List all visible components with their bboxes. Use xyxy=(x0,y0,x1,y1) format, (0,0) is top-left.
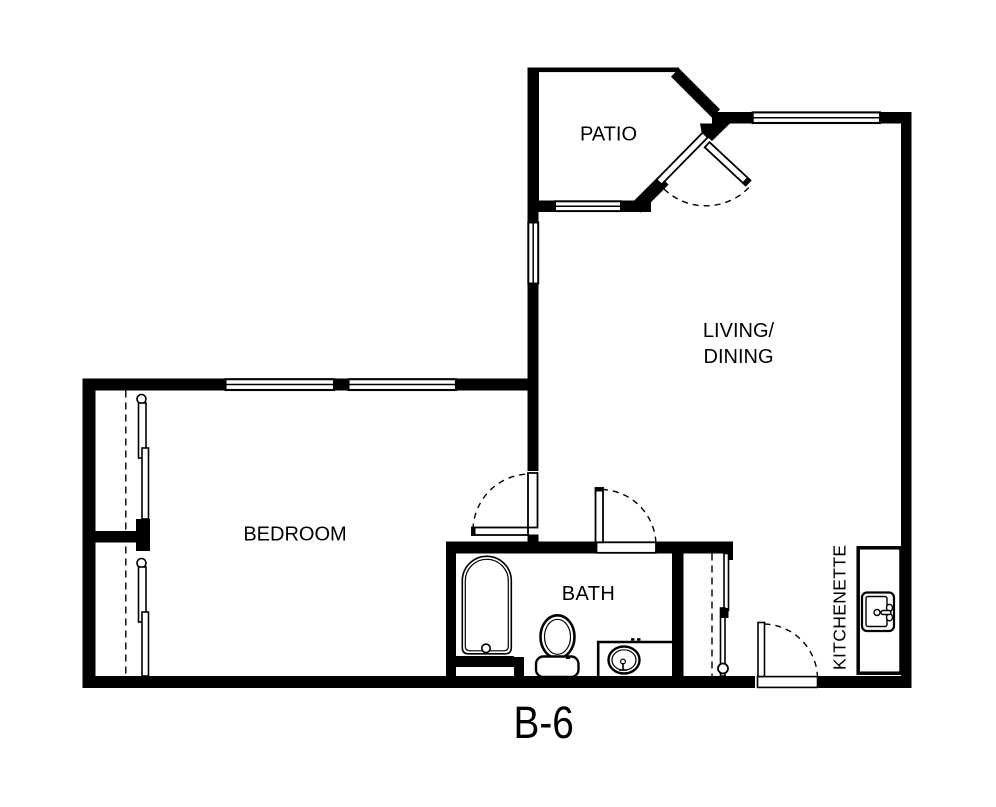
svg-text:BEDROOM: BEDROOM xyxy=(243,524,346,546)
svg-text:KITCHENETTE: KITCHENETTE xyxy=(829,545,849,670)
svg-text:PATIO: PATIO xyxy=(580,124,637,146)
svg-text:BATH: BATH xyxy=(562,583,615,605)
svg-text:LIVING/: LIVING/ xyxy=(703,320,775,342)
svg-text:DINING: DINING xyxy=(704,346,774,368)
svg-text:B-6: B-6 xyxy=(514,697,574,748)
